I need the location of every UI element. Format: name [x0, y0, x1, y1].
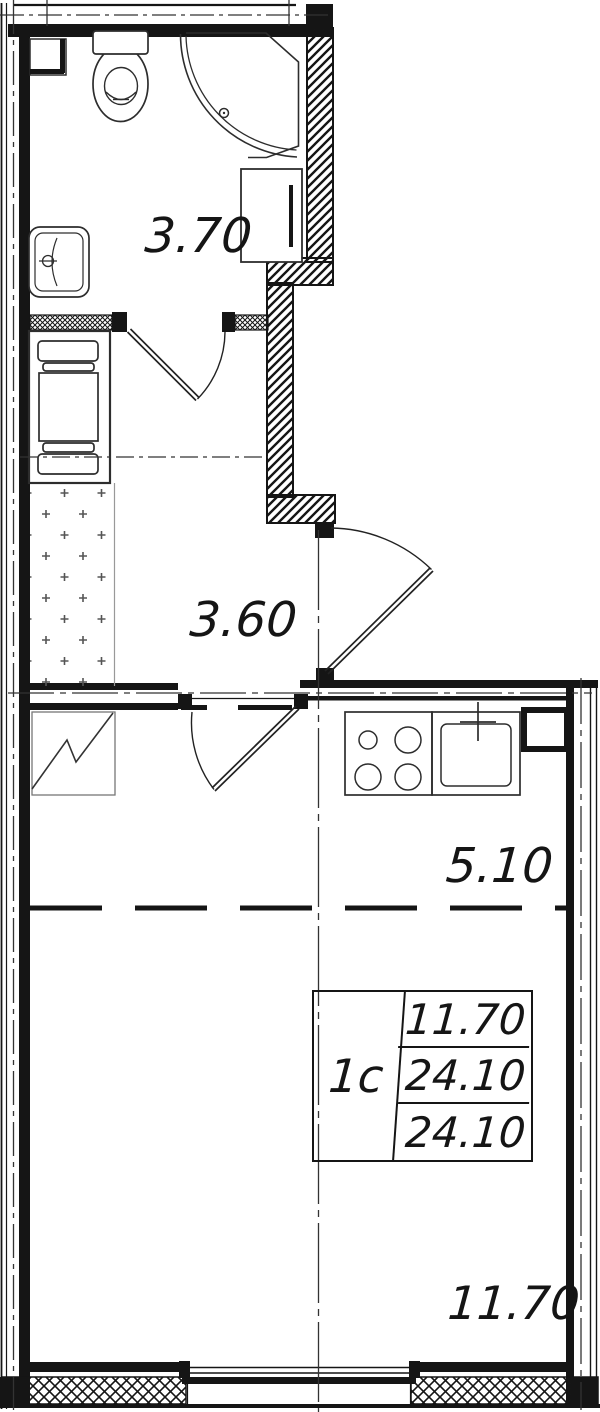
apartment-type-cell: 1с: [308, 992, 406, 1160]
burner: [395, 764, 421, 790]
living-room-door: [191, 706, 299, 791]
bathroom-area-label: 3.70: [143, 212, 253, 260]
closet-area: [30, 483, 115, 686]
burner: [355, 764, 381, 790]
floor-plan-drawing: [0, 0, 600, 1412]
electrical-panel: [32, 712, 115, 795]
floor-plan: 3.70 3.60 5.10 11.70 1с 11.70 24.10 24.1…: [0, 0, 600, 1412]
column-segment-middle: [267, 283, 293, 497]
vent-shaft-kitchen: [524, 710, 567, 749]
apartment-table-row: 24.10: [398, 1048, 533, 1104]
kitchen-fixtures: [345, 702, 567, 795]
kitchen-top-wall: [300, 680, 598, 701]
apartment-table-row: 11.70: [398, 992, 533, 1048]
column-segment-foot: [267, 495, 335, 523]
entrance-door: [325, 528, 433, 674]
vent-shaft-bathroom: [30, 39, 66, 75]
kitchen-sink-counter: [432, 702, 520, 795]
bathroom-door: [128, 329, 226, 401]
hallway-area-label: 3.60: [188, 596, 298, 644]
bottom-exterior-wall: [0, 1362, 600, 1408]
stove: [345, 712, 432, 795]
bathroom-partition-wall: [30, 312, 268, 332]
burner: [395, 727, 421, 753]
kitchen-zone-area-label: 5.10: [444, 842, 554, 890]
left-wall: [19, 24, 30, 1408]
apartment-info-table: 1с 11.70 24.10 24.10: [312, 990, 533, 1162]
column-segment-upper: [307, 28, 333, 262]
living-door-jamb-left: [178, 694, 192, 709]
shower-cabin: [180, 33, 298, 158]
toilet: [93, 31, 148, 122]
hallway-fixtures: [29, 331, 115, 686]
load-bearing-column: [267, 28, 335, 523]
bottom-window: [179, 1361, 420, 1404]
living-zone-area-label: 11.70: [446, 1280, 581, 1326]
burner: [359, 731, 377, 749]
hall-bottom-wall: [30, 683, 308, 710]
hallway-cabinet: [29, 331, 110, 483]
apartment-table-row: 24.10: [398, 1104, 533, 1160]
top-wall: [8, 24, 333, 37]
bathroom-sink: [29, 227, 89, 297]
